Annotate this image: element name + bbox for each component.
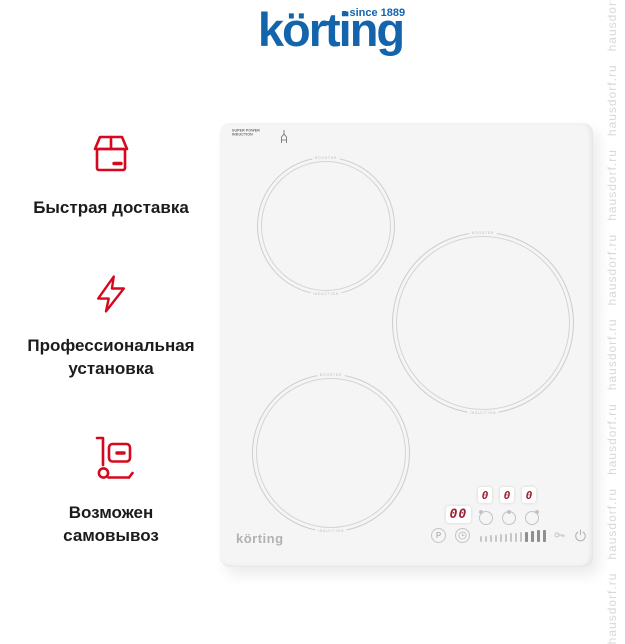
hob-brand-label: körting xyxy=(236,531,284,546)
zone-power-displays: 0 0 0 xyxy=(478,487,536,503)
feature-pro-installation: Профессиональная установка xyxy=(5,272,217,380)
zone-power-display: 0 xyxy=(522,487,536,503)
brand-tagline: since 1889 xyxy=(342,7,405,19)
cooking-zone-right: BOOSTER INDUCTION xyxy=(392,232,574,414)
slider-tick xyxy=(520,532,522,541)
slider-tick xyxy=(490,535,492,541)
tagline-text: since 1889 xyxy=(349,7,405,19)
cooking-zone-inner-ring xyxy=(256,378,406,528)
zone-selector-row xyxy=(479,511,539,525)
timer-display: 00 xyxy=(446,506,471,523)
feature-label-line: самовывоз xyxy=(5,524,217,547)
slider-tick xyxy=(500,534,502,541)
zone-selector-icon xyxy=(502,511,516,525)
tagline-square-icon xyxy=(342,11,346,15)
brand-logo: körting since 1889 xyxy=(258,6,403,53)
power-icon xyxy=(573,528,588,543)
key-lock-icon xyxy=(554,531,565,539)
feature-label-line: Быстрая доставка xyxy=(5,196,217,219)
zone-bottom-label: INDUCTION xyxy=(315,529,346,533)
zone-bottom-label: INDUCTION xyxy=(467,411,498,415)
feature-label-line: Профессиональная xyxy=(5,334,217,357)
hob-corner-badge: SUPER POWER INDUCTION xyxy=(232,129,288,145)
slider-tick xyxy=(515,533,517,542)
zone-top-label: BOOSTER xyxy=(312,156,339,160)
cooking-zone-inner-ring xyxy=(396,236,570,410)
feature-fast-delivery: Быстрая доставка xyxy=(5,130,217,219)
timer-clock-icon xyxy=(455,528,470,543)
slider-tick xyxy=(537,530,540,541)
hob-corner-badge-line2: INDUCTION xyxy=(232,133,260,137)
cooking-zone-front-left: BOOSTER INDUCTION xyxy=(252,374,410,532)
slider-tick xyxy=(510,533,512,541)
slider-tick xyxy=(495,535,497,542)
slider-tick xyxy=(505,534,507,542)
control-panel-bottom-row: P xyxy=(431,527,588,543)
slider-tick xyxy=(480,536,482,541)
zone-top-label: BOOSTER xyxy=(469,231,496,235)
slider-tick xyxy=(531,531,534,542)
cooktop-product-image: SUPER POWER INDUCTION BOOSTER INDUCTION … xyxy=(220,123,593,567)
feature-pickup: Возможен самовывоз xyxy=(5,431,217,547)
boost-button: P xyxy=(431,528,446,543)
power-slider xyxy=(480,529,546,542)
zone-bottom-label: INDUCTION xyxy=(310,292,341,296)
bolt-icon xyxy=(5,272,217,316)
feature-label-line: Возможен xyxy=(5,501,217,524)
feature-label-line: установка xyxy=(5,357,217,380)
slider-tick xyxy=(525,532,528,542)
cooking-zone-rear-left: BOOSTER INDUCTION xyxy=(257,157,395,295)
zone-top-label: BOOSTER xyxy=(317,373,344,377)
package-icon xyxy=(5,130,217,178)
zone-power-display: 0 xyxy=(478,487,492,503)
slider-tick xyxy=(485,536,487,542)
zone-selector-icon xyxy=(525,511,539,525)
zone-selector-icon xyxy=(479,511,493,525)
zone-power-display: 0 xyxy=(500,487,514,503)
slider-tick xyxy=(543,530,546,542)
handtruck-icon xyxy=(5,431,217,483)
cooking-zone-inner-ring xyxy=(261,161,391,291)
spire-icon xyxy=(280,130,288,143)
watermark: hausdorf.ru hausdorf.ru hausdorf.ru haus… xyxy=(605,0,619,644)
